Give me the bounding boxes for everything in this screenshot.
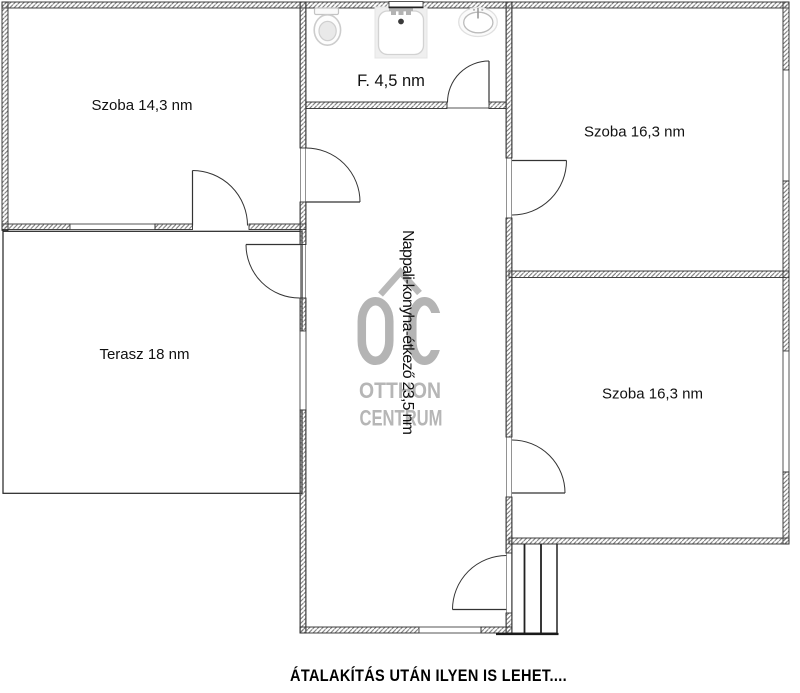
svg-text:Szoba 14,3 nm: Szoba 14,3 nm — [92, 97, 193, 114]
svg-text:Nappali-konyha-étkező 23,5 nm: Nappali-konyha-étkező 23,5 nm — [399, 230, 416, 435]
svg-text:Szoba 16,3 nm: Szoba 16,3 nm — [584, 124, 685, 141]
svg-text:ÁTALAKÍTÁS UTÁN ILYEN IS LEHET: ÁTALAKÍTÁS UTÁN ILYEN IS LEHET.... — [290, 666, 567, 685]
svg-text:Terasz 18 nm: Terasz 18 nm — [99, 346, 189, 363]
svg-text:Szoba 16,3 nm: Szoba 16,3 nm — [602, 386, 703, 403]
svg-text:F. 4,5 nm: F. 4,5 nm — [357, 72, 425, 90]
